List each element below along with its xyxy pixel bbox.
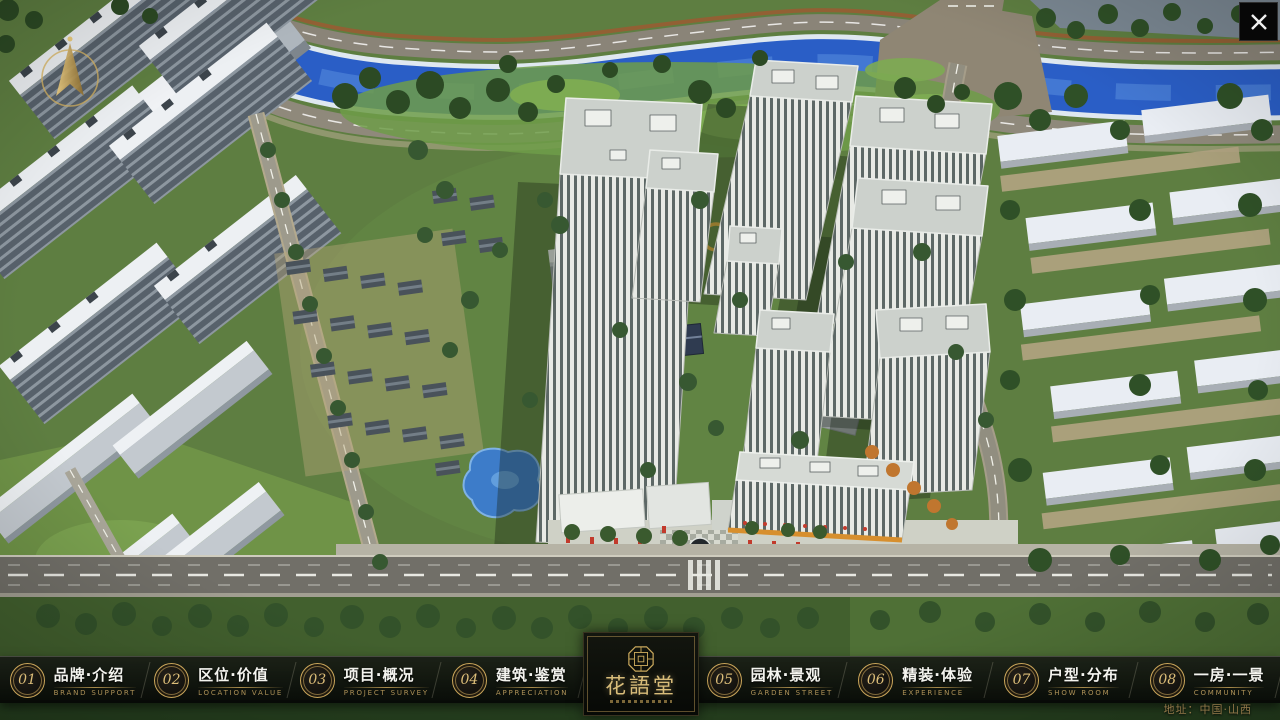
nav-item-views[interactable]: 08 一房·一景 COMMUNITY: [1134, 657, 1280, 703]
nav-label-en: GARDEN STREET: [751, 689, 833, 697]
nav-label-en: COMMUNITY: [1194, 689, 1254, 697]
nav-badge-02: 02: [154, 663, 189, 698]
nav-item-floorplans[interactable]: 07 户型·分布 SHOW ROOM: [989, 657, 1135, 703]
close-button[interactable]: [1239, 2, 1278, 41]
nav-badge-06: 06: [858, 663, 893, 698]
nav-label-zh: 园林·景观: [751, 664, 822, 685]
gold-divider: [54, 687, 137, 688]
nav-number: 04: [461, 672, 479, 688]
project-address: 地址：中国·山西: [1164, 701, 1253, 717]
gold-divider: [198, 687, 283, 688]
logo-tagline-decoration: [610, 700, 672, 703]
gold-divider: [1194, 687, 1265, 688]
nav-badge-04: 04: [452, 663, 487, 698]
nav-label-zh: 精装·体验: [902, 664, 973, 685]
gold-divider: [496, 687, 568, 688]
nav-number: 07: [1013, 672, 1031, 688]
nav-label-zh: 区位·价值: [198, 664, 269, 685]
nav-label-zh: 建筑·鉴赏: [496, 664, 567, 685]
nav-label-zh: 一房·一景: [1194, 664, 1265, 685]
nav-number: 03: [308, 672, 326, 688]
compass-north-icon: [34, 34, 106, 114]
nav-badge-05: 05: [707, 663, 742, 698]
nav-item-architecture[interactable]: 04 建筑·鉴赏 APPRECIATION: [437, 657, 583, 703]
nav-number: 08: [1158, 672, 1176, 688]
nav-badge-07: 07: [1004, 663, 1039, 698]
nav-badge-08: 08: [1150, 663, 1185, 698]
nav-label-zh: 项目·概况: [344, 664, 415, 685]
nav-label-en: BRAND SUPPORT: [54, 689, 137, 697]
nav-item-brand[interactable]: 01 品牌·介绍 BRAND SUPPORT: [0, 657, 146, 703]
project-name: 花語堂: [605, 675, 677, 698]
nav-label-en: LOCATION VALUE: [198, 689, 283, 697]
gold-divider: [902, 687, 973, 688]
project-logo-panel[interactable]: 花語堂: [583, 632, 699, 716]
gold-divider: [1048, 687, 1119, 688]
bottom-nav-left: 01 品牌·介绍 BRAND SUPPORT 02 区位·价值 LOCATION…: [0, 656, 583, 703]
nav-label-en: APPRECIATION: [496, 689, 568, 697]
nav-label-zh: 户型·分布: [1048, 664, 1119, 685]
gold-divider: [344, 687, 429, 688]
close-icon: [1250, 13, 1268, 31]
gold-divider: [751, 687, 833, 688]
nav-badge-03: 03: [300, 663, 335, 698]
nav-label-en: EXPERIENCE: [902, 689, 964, 697]
bottom-nav-right: 05 园林·景观 GARDEN STREET 06 精装·体验 EXPERIEN…: [697, 656, 1280, 703]
nav-number: 06: [867, 672, 885, 688]
nav-number: 02: [163, 672, 181, 688]
nav-badge-01: 01: [10, 663, 45, 698]
nav-item-interior[interactable]: 06 精装·体验 EXPERIENCE: [843, 657, 989, 703]
aerial-masterplan-rendering: [0, 0, 1280, 720]
nav-label-en: PROJECT SURVEY: [344, 689, 429, 697]
nav-number: 05: [715, 672, 733, 688]
nav-label-zh: 品牌·介绍: [54, 664, 125, 685]
app-window: 01 品牌·介绍 BRAND SUPPORT 02 区位·价值 LOCATION…: [0, 0, 1280, 720]
nav-item-garden[interactable]: 05 园林·景观 GARDEN STREET: [697, 657, 843, 703]
nav-item-project[interactable]: 03 项目·概况 PROJECT SURVEY: [292, 657, 438, 703]
logo-seal-icon: [627, 645, 655, 673]
nav-number: 01: [18, 672, 36, 688]
nav-item-location[interactable]: 02 区位·价值 LOCATION VALUE: [146, 657, 292, 703]
nav-label-en: SHOW ROOM: [1048, 689, 1111, 697]
